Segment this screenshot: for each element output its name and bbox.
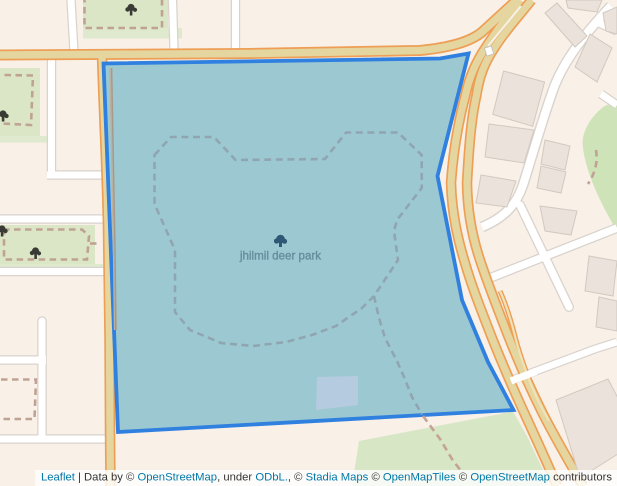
svg-text:Leaflet | Data by © OpenStreet: Leaflet | Data by © OpenStreetMap, under… <box>41 472 613 484</box>
svg-text:jhilmil deer park: jhilmil deer park <box>239 250 321 263</box>
